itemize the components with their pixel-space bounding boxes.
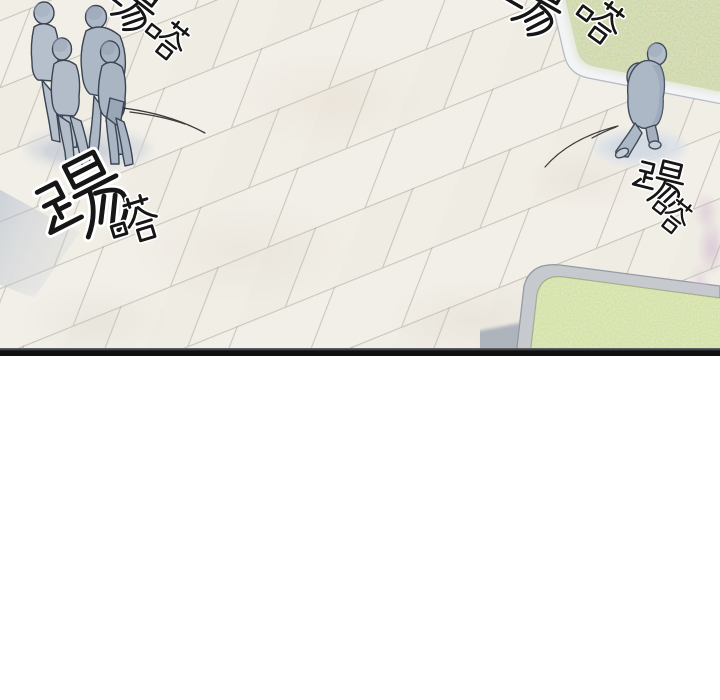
- page-gutter: [0, 356, 720, 700]
- comic-panel: [0, 0, 720, 356]
- sfx-right-middle: [629, 155, 696, 237]
- sfx-top-right: [490, 0, 629, 47]
- comic-page: [0, 0, 720, 700]
- sfx-mid-left-large: [27, 148, 162, 258]
- panel-bottom-border: [0, 348, 720, 356]
- sfx-layer: [0, 0, 720, 356]
- sfx-top-left: [93, 0, 194, 63]
